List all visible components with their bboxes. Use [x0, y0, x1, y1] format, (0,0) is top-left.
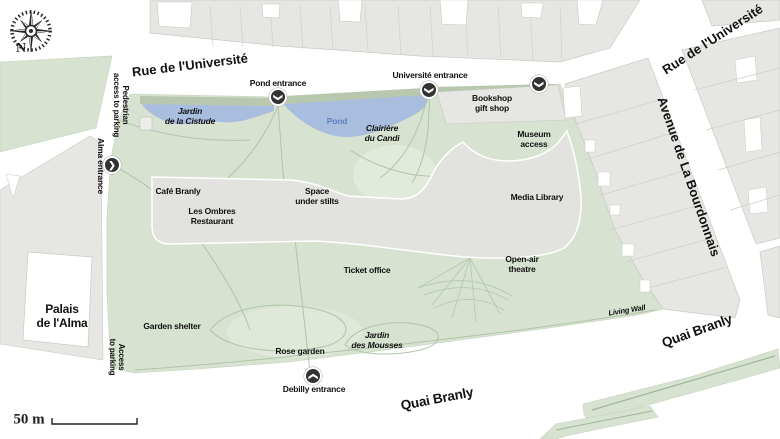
space-under-stilts-label: Space under stilts: [295, 187, 338, 207]
chevron-icon: ❯: [273, 93, 282, 101]
access-to-parking-label: Access to parking: [108, 339, 126, 376]
chevron-icon: ❯: [424, 86, 433, 94]
universite-entrance-label: Université entrance: [392, 71, 467, 81]
pond-entrance-icon: ❯: [269, 88, 287, 106]
cafe-branly-label: Café Branly: [155, 187, 200, 197]
ticket-office-label: Ticket office: [344, 266, 391, 276]
bookshop-label: Bookshop gift shop: [472, 94, 512, 114]
clairiere-candi-label: Clairière du Candi: [365, 124, 400, 144]
chevron-icon: ❯: [108, 161, 116, 170]
les-ombres-label: Les Ombres Restaurant: [188, 207, 235, 227]
pond-entrance-label: Pond entrance: [250, 79, 306, 89]
rose-garden-label: Rose garden: [275, 347, 324, 357]
quai-branly-garden-map: Rue de l'Université Rue de l'Université …: [0, 0, 780, 439]
open-air-theatre-label: Open-air theatre: [505, 255, 538, 275]
museum-access-label: Museum access: [517, 130, 550, 150]
chevron-icon: ❯: [534, 80, 543, 88]
quai-median-strips: [540, 349, 780, 439]
scale-bar: [52, 418, 137, 424]
debilly-entrance-label: Debilly entrance: [283, 385, 345, 395]
garden-kiosk: [140, 117, 152, 130]
palais-alma-label: Palais de l'Alma: [36, 303, 87, 331]
palais-alma-building: [23, 252, 92, 347]
debilly-entrance-icon: ❯: [304, 367, 322, 385]
pedestrian-access-label: Pedestrian access to parking: [112, 73, 130, 137]
scale-label: 50 m: [13, 411, 44, 428]
entrance-icon-unlabeled: ❯: [530, 75, 548, 93]
alma-entrance-label: Alma entrance: [95, 138, 105, 194]
media-library-label: Media Library: [511, 193, 564, 203]
garden-shelter-label: Garden shelter: [143, 322, 200, 332]
compass-north-label: N: [16, 41, 26, 57]
jardin-mousses-label: Jardin des Mousses: [351, 331, 402, 351]
universite-entrance-icon: ❯: [420, 81, 438, 99]
pond-label: Pond: [327, 117, 347, 127]
chevron-icon: ❯: [308, 372, 317, 380]
jardin-cistude-label: Jardin de la Cistude: [165, 107, 215, 127]
